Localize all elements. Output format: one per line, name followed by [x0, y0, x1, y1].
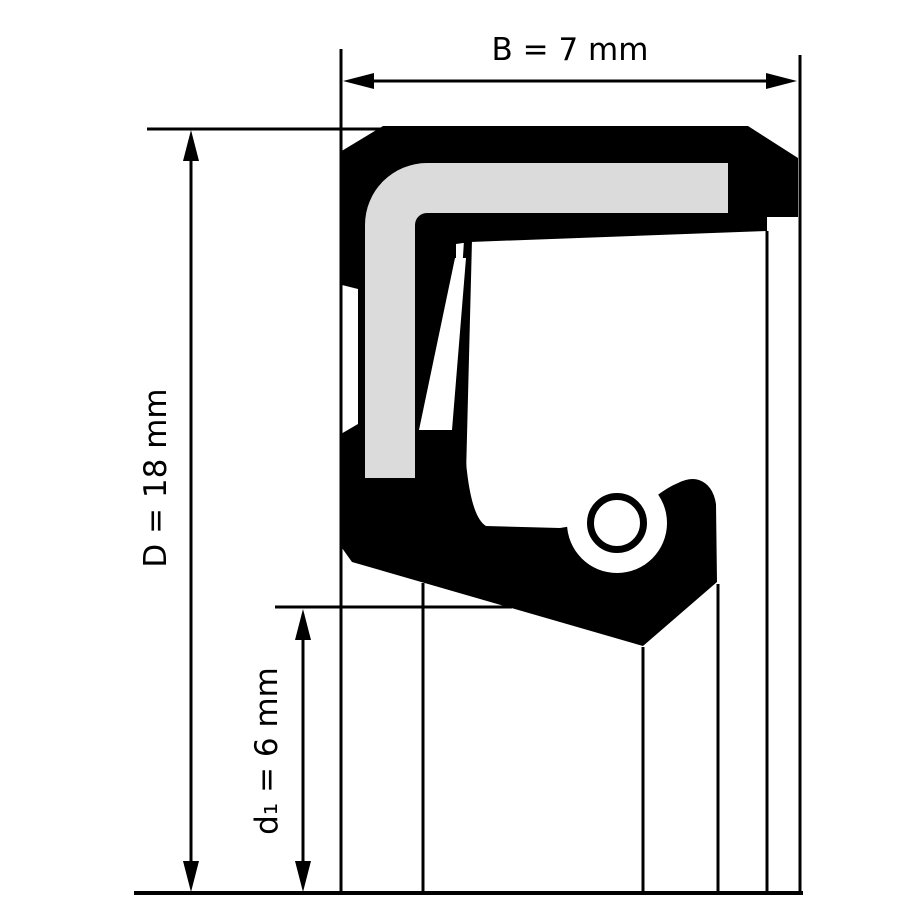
arrowhead-up-icon: [183, 130, 199, 161]
arrowhead-up-icon: [295, 609, 311, 640]
arrowhead-down-icon: [183, 861, 199, 892]
left-relief-wedge: [334, 283, 358, 438]
arrowhead-down-icon: [295, 861, 311, 892]
seal-cross-section-diagram: B = 7 mm D = 18 mm d₁ = 6 mm: [0, 0, 900, 900]
arrowhead-right-icon: [766, 73, 797, 89]
spring-coil-ring: [591, 497, 644, 550]
garter-spring: [567, 473, 667, 573]
dimension-inner-diameter: d₁ = 6 mm: [249, 607, 512, 892]
arrowhead-left-icon: [343, 73, 374, 89]
dimension-label-inner-diameter: d₁ = 6 mm: [249, 667, 285, 835]
dimension-label-outer-diameter: D = 18 mm: [138, 388, 174, 567]
seal-technical-drawing: B = 7 mm D = 18 mm d₁ = 6 mm: [0, 0, 900, 900]
dimension-width: B = 7 mm: [343, 32, 797, 89]
dimension-label-width: B = 7 mm: [492, 32, 649, 68]
